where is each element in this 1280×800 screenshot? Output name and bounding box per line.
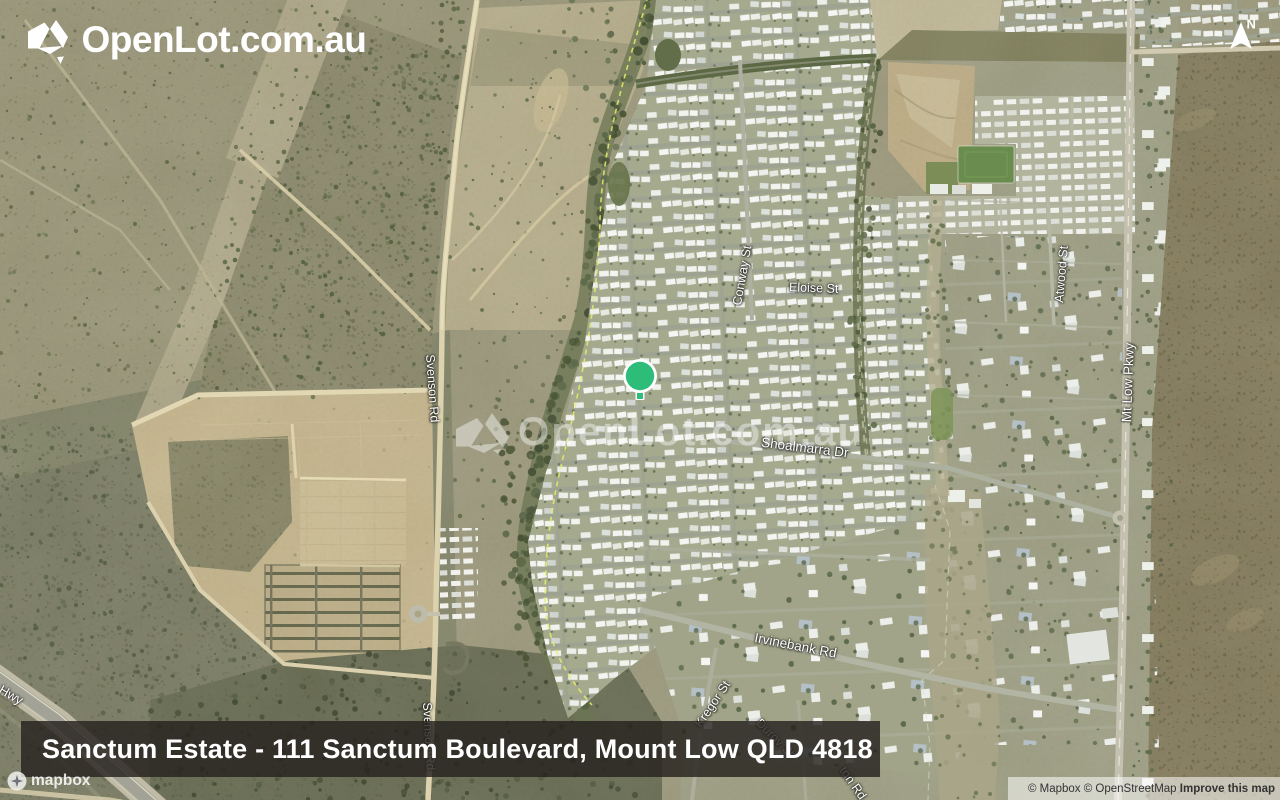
- svg-text:N: N: [1247, 17, 1256, 32]
